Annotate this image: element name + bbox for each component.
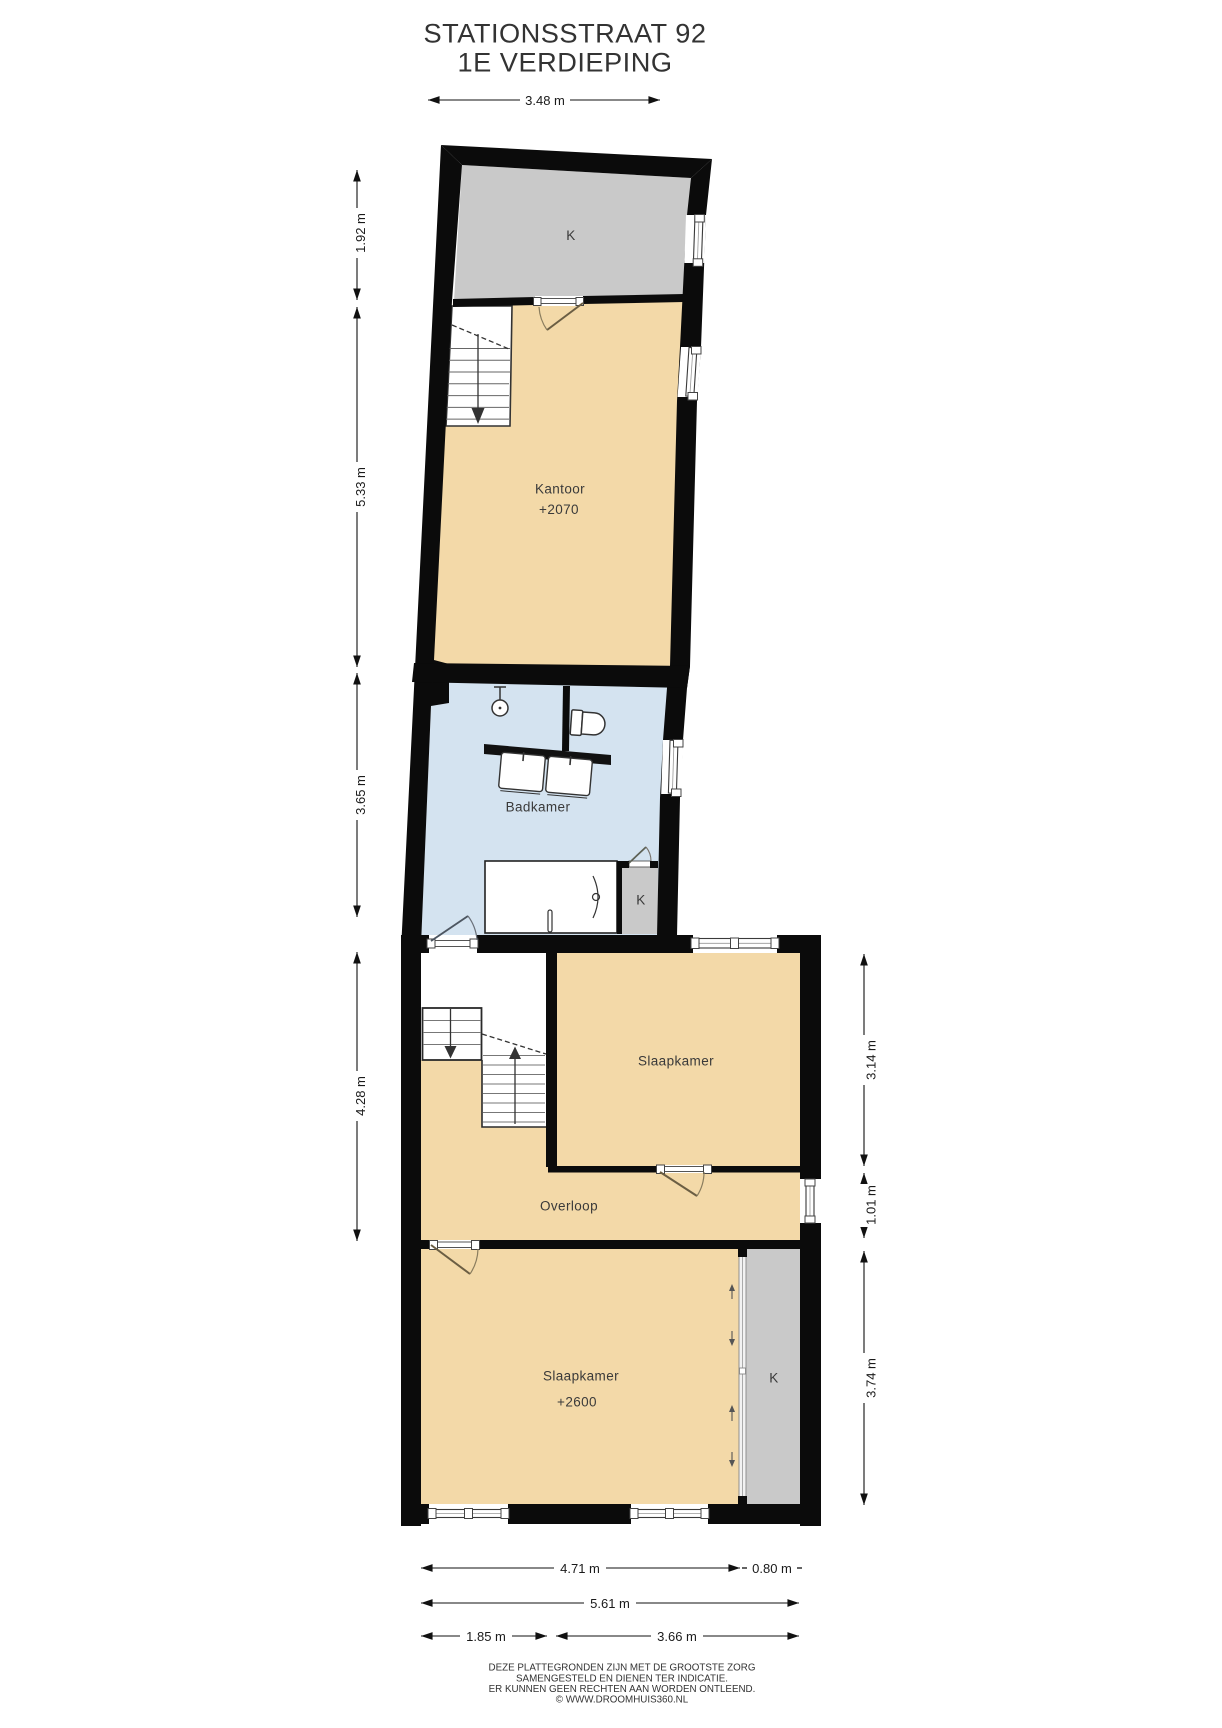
svg-text:3.66 m: 3.66 m xyxy=(657,1629,697,1644)
svg-text:4.71 m: 4.71 m xyxy=(560,1561,600,1576)
svg-text:© WWW.DROOMHUIS360.NL: © WWW.DROOMHUIS360.NL xyxy=(556,1695,689,1706)
svg-text:1.85 m: 1.85 m xyxy=(466,1629,506,1644)
svg-text:5.33 m: 5.33 m xyxy=(353,467,368,507)
svg-text:3.14 m: 3.14 m xyxy=(864,1040,879,1080)
svg-text:ER KUNNEN GEEN RECHTEN AAN WOR: ER KUNNEN GEEN RECHTEN AAN WORDEN ONTLEE… xyxy=(489,1684,756,1695)
svg-text:STATIONSSTRAAT 92: STATIONSSTRAAT 92 xyxy=(424,18,707,49)
svg-text:SAMENGESTELD EN DIENEN TER IND: SAMENGESTELD EN DIENEN TER INDICATIE. xyxy=(516,1674,728,1685)
svg-text:3.48 m: 3.48 m xyxy=(525,93,565,108)
svg-text:1.01 m: 1.01 m xyxy=(864,1185,879,1225)
svg-text:4.28 m: 4.28 m xyxy=(353,1076,368,1116)
svg-text:Slaapkamer: Slaapkamer xyxy=(543,1369,619,1384)
svg-text:1.92 m: 1.92 m xyxy=(353,213,368,253)
svg-text:3.65 m: 3.65 m xyxy=(353,775,368,815)
svg-text:K: K xyxy=(566,228,575,243)
svg-text:+2070: +2070 xyxy=(539,502,579,517)
svg-text:3.74 m: 3.74 m xyxy=(864,1358,879,1398)
svg-text:5.61 m: 5.61 m xyxy=(590,1596,630,1611)
svg-text:Badkamer: Badkamer xyxy=(506,800,571,815)
svg-text:K: K xyxy=(769,1371,778,1386)
svg-text:1E VERDIEPING: 1E VERDIEPING xyxy=(458,47,673,78)
svg-text:K: K xyxy=(636,893,645,908)
svg-text:Kantoor: Kantoor xyxy=(535,482,585,497)
svg-text:0.80 m: 0.80 m xyxy=(752,1561,792,1576)
svg-text:+2600: +2600 xyxy=(557,1395,597,1410)
svg-text:DEZE PLATTEGRONDEN ZIJN MET DE: DEZE PLATTEGRONDEN ZIJN MET DE GROOTSTE … xyxy=(489,1663,756,1674)
svg-text:Slaapkamer: Slaapkamer xyxy=(638,1054,714,1069)
svg-text:Overloop: Overloop xyxy=(540,1199,598,1214)
